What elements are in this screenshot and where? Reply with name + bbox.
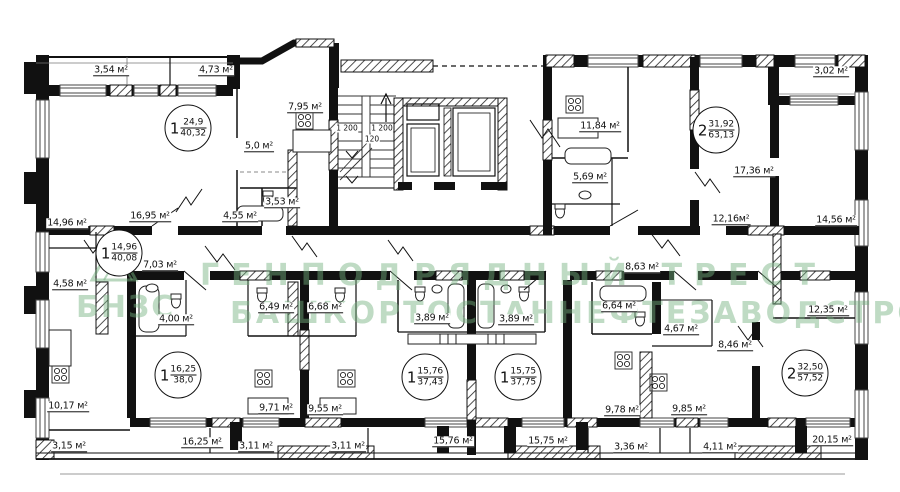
room-area-label: 4,55 м²: [222, 211, 258, 222]
room-area-label: 15,75 м²: [527, 436, 569, 447]
apartment-badge: 1 15,7537,75: [495, 354, 542, 401]
room-area-label: 3,02 м²: [813, 66, 849, 77]
apartment-badge: 1 15,7637,43: [402, 354, 449, 401]
room-area-label: 4,73 м²: [198, 65, 234, 76]
apartment-total-area: 63,13: [708, 131, 734, 141]
room-area-label: 3,89 м²: [414, 313, 450, 324]
apartment-living-area: 14,96: [111, 242, 137, 253]
apartment-rooms-count: 1: [170, 119, 180, 137]
room-area-label: 16,25 м²: [181, 437, 223, 448]
stair-dimension-label: 120: [364, 135, 380, 144]
apartment-rooms-count: 2: [787, 364, 797, 382]
room-area-label: 4,00 м²: [158, 314, 194, 325]
apartment-living-area: 15,75: [510, 366, 536, 377]
room-area-label: 6,68 м²: [307, 302, 343, 313]
room-area-label: 4,58 м²: [52, 279, 88, 290]
room-area-label: 14,56 м²: [815, 215, 857, 226]
staircase: [329, 66, 543, 228]
room-area-label: 8,63 м²: [624, 262, 660, 273]
apartment-badge: 1 24,940,32: [165, 105, 212, 152]
room-area-label: 7,03 м²: [142, 260, 178, 271]
apartment-rooms-count: 1: [160, 366, 170, 384]
room-area-label: 12,35 м²: [807, 305, 849, 316]
room-area-label: 9,78 м²: [604, 405, 640, 416]
apartment-living-area: 32,50: [797, 362, 823, 373]
apartment-living-area: 15,76: [417, 366, 443, 377]
room-area-label: 10,17 м²: [47, 401, 89, 412]
apartment-total-area: 57,52: [797, 374, 823, 384]
room-area-label: 3,54 м²: [93, 65, 129, 76]
apartment-badge: 1 14,9640,08: [96, 230, 143, 277]
corridor-walls: [49, 226, 868, 280]
room-area-label: 3,11 м²: [330, 441, 366, 452]
room-area-label: 4,67 м²: [663, 324, 699, 335]
apartment-total-area: 37,75: [510, 378, 536, 388]
apartment-living-area: 24,9: [180, 117, 206, 128]
apartment-total-area: 38,0: [170, 376, 196, 386]
room-area-label: 5,0 м²: [244, 141, 274, 152]
room-area-label: 9,55 м²: [307, 404, 343, 415]
room-area-label: 6,64 м²: [601, 301, 637, 312]
apartment-rooms-count: 2: [698, 121, 708, 139]
apartment-total-area: 40,08: [111, 254, 137, 264]
room-area-label: 4,11 м²: [702, 442, 738, 453]
room-area-label: 3,36 м²: [613, 442, 649, 453]
room-area-label: 17,36 м²: [733, 166, 775, 177]
stair-dimension-label: 1 200: [335, 124, 358, 133]
room-area-label: 12,16м²: [712, 214, 751, 225]
room-area-label: 3,89 м²: [498, 314, 534, 325]
room-area-label: 11,84 м²: [579, 121, 621, 132]
apartment-rooms-count: 1: [101, 244, 111, 262]
apartment-total-area: 40,32: [180, 129, 206, 139]
apartment-total-area: 37,43: [417, 378, 443, 388]
room-area-label: 8,46 м²: [717, 340, 753, 351]
elevators: [394, 98, 507, 190]
room-area-label: 7,95 м²: [287, 102, 323, 113]
room-area-label: 14,96 м²: [46, 218, 88, 229]
apartment-rooms-count: 1: [407, 368, 417, 386]
room-area-label: 16,95 м²: [129, 211, 171, 222]
apartment-rooms-count: 1: [500, 368, 510, 386]
apartment-badge: 1 16,2538,0: [155, 352, 202, 399]
room-area-label: 3,53 м²: [264, 197, 300, 208]
apartment-living-area: 31,92: [708, 119, 734, 130]
room-area-label: 3,11 м²: [238, 441, 274, 452]
room-area-label: 20,15 м²: [811, 435, 853, 446]
room-area-label: 9,71 м²: [258, 403, 294, 414]
room-area-label: 15,76 м²: [432, 436, 474, 447]
room-area-label: 3,15 м²: [51, 441, 87, 452]
apartment-badge: 2 31,9263,13: [693, 107, 740, 154]
room-area-label: 6,49 м²: [258, 302, 294, 313]
apartment-badge: 2 32,5057,52: [782, 350, 829, 397]
apartment-living-area: 16,25: [170, 364, 196, 375]
floor-plan-canvas: БНЗС ГЕНПОДРЯДНЫЙ ТРЕСТ БАШКОРТОСТАННЕФТ…: [0, 0, 900, 492]
room-area-label: 9,85 м²: [671, 404, 707, 415]
room-area-label: 5,69 м²: [572, 172, 608, 183]
stair-dimension-label: 1 200: [370, 124, 393, 133]
